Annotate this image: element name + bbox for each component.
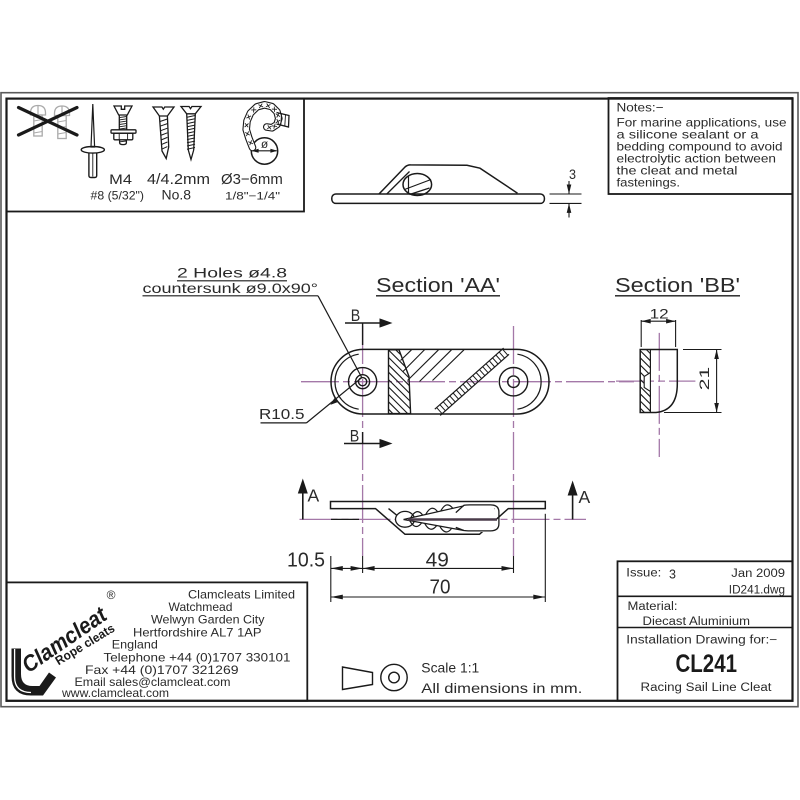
svg-text:Diecast Aluminium: Diecast Aluminium: [643, 616, 751, 628]
svg-text:B: B: [350, 428, 360, 446]
svg-text:4/4.2mm: 4/4.2mm: [147, 171, 210, 188]
svg-text:21: 21: [697, 367, 712, 390]
svg-text:Notes:−: Notes:−: [617, 101, 664, 115]
svg-text:All dimensions in mm.: All dimensions in mm.: [421, 680, 582, 696]
svg-text:M4: M4: [109, 171, 132, 187]
svg-text:12: 12: [650, 307, 669, 322]
svg-text:3: 3: [569, 167, 576, 182]
svg-text:CL241: CL241: [676, 650, 738, 678]
svg-text:ID241.dwg: ID241.dwg: [729, 585, 785, 597]
svg-text:49: 49: [426, 549, 449, 572]
svg-text:®: ®: [107, 588, 116, 602]
svg-text:70: 70: [430, 576, 451, 599]
svg-text:No.8: No.8: [162, 188, 192, 203]
svg-text:Racing Sail Line Cleat: Racing Sail Line Cleat: [641, 682, 773, 694]
svg-text:Scale 1:1: Scale 1:1: [421, 660, 479, 676]
svg-text:Material:: Material:: [628, 601, 678, 613]
svg-text:3: 3: [669, 568, 676, 582]
svg-text:A: A: [579, 487, 591, 507]
svg-text:R10.5: R10.5: [259, 406, 305, 423]
svg-text:A: A: [308, 486, 320, 506]
svg-text:#8 (5/32"): #8 (5/32"): [91, 189, 145, 203]
svg-text:countersunk ø9.0x90°: countersunk ø9.0x90°: [143, 280, 319, 296]
svg-text:Jan 2009: Jan 2009: [731, 568, 785, 580]
svg-text:10.5: 10.5: [287, 549, 325, 572]
svg-text:fastenings.: fastenings.: [617, 176, 681, 190]
svg-text:Ø3−6mm: Ø3−6mm: [221, 171, 283, 188]
svg-text:2 Holes ø4.8: 2 Holes ø4.8: [177, 265, 287, 281]
svg-text:www.clamcleat.com: www.clamcleat.com: [61, 686, 169, 700]
svg-text:Installation Drawing for:−: Installation Drawing for:−: [626, 635, 777, 647]
svg-text:1/8"−1/4": 1/8"−1/4": [225, 191, 280, 203]
svg-text:Section 'AA': Section 'AA': [376, 275, 500, 297]
svg-text:Issue:: Issue:: [626, 568, 661, 580]
svg-text:Section 'BB': Section 'BB': [615, 275, 740, 297]
svg-text:ø: ø: [261, 137, 269, 151]
svg-text:B: B: [351, 307, 361, 325]
